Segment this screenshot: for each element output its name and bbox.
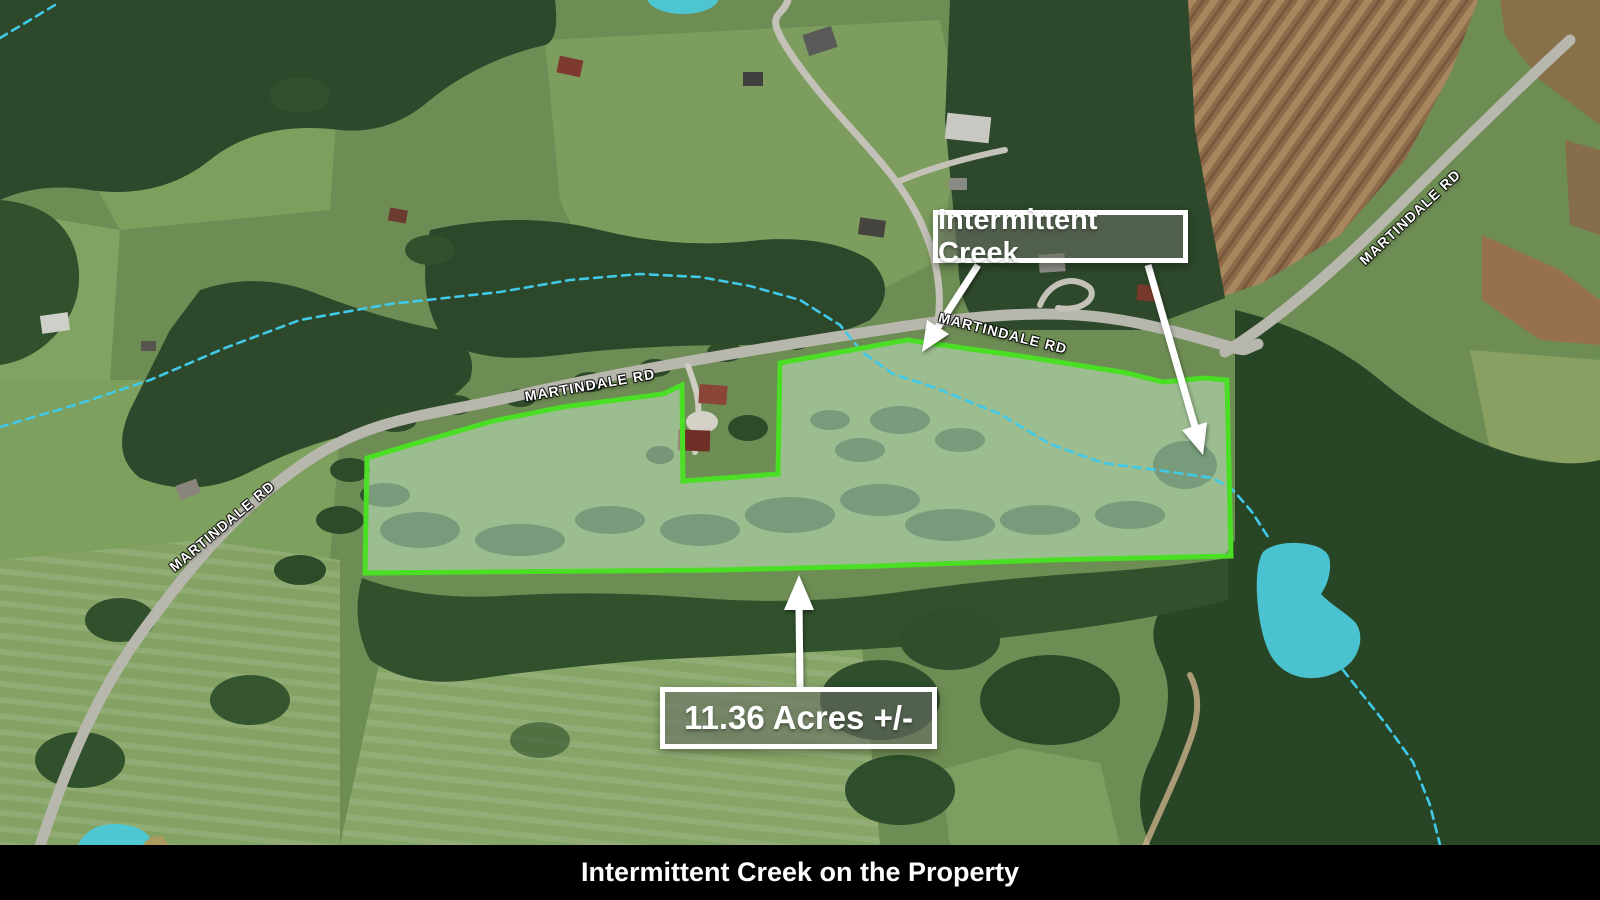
acreage-label: 11.36 Acres +/- <box>660 687 937 749</box>
satellite-map-image <box>0 0 1600 900</box>
aerial-map-screenshot: MARTINDALE RD MARTINDALE RD MARTINDALE R… <box>0 0 1600 900</box>
caption-bar: Intermittent Creek on the Property <box>0 845 1600 900</box>
caption-text: Intermittent Creek on the Property <box>581 857 1019 888</box>
driveway-pad <box>686 411 718 433</box>
acreage-label-text: 11.36 Acres +/- <box>684 699 913 737</box>
intermittent-creek-label-text: Intermittent Creek <box>938 204 1183 270</box>
intermittent-creek-label: Intermittent Creek <box>933 210 1188 263</box>
